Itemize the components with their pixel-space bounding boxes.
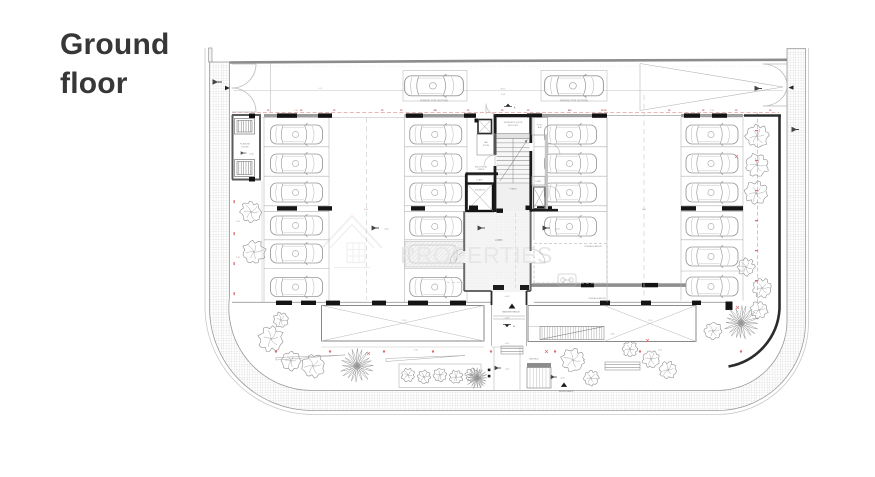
- svg-text:+0.45: +0.45: [505, 296, 510, 298]
- svg-text:29.15: 29.15: [500, 88, 506, 90]
- svg-text:TERRACE ABOVE: TERRACE ABOVE: [584, 245, 602, 248]
- svg-text:+0.30: +0.30: [505, 318, 510, 320]
- svg-text:2.50: 2.50: [710, 110, 714, 112]
- svg-text:PARKING FOR VISITORS: PARKING FOR VISITORS: [420, 99, 448, 102]
- svg-text:2.50: 2.50: [294, 110, 298, 112]
- svg-text:2.50: 2.50: [236, 257, 240, 259]
- svg-text:6.00: 6.00: [642, 209, 646, 211]
- svg-text:2.50: 2.50: [568, 110, 572, 112]
- svg-text:ELECTRICAL: ELECTRICAL: [475, 165, 488, 168]
- svg-text:+0.15: +0.15: [505, 369, 509, 371]
- svg-text:ELEVATOR: ELEVATOR: [475, 188, 485, 191]
- svg-text:LOBBY: LOBBY: [535, 181, 542, 183]
- svg-text:WITH STEP: WITH STEP: [508, 125, 519, 127]
- svg-text:+0.30: +0.30: [560, 378, 564, 380]
- svg-text:SPACE: SPACE: [478, 168, 485, 171]
- svg-text:6.00: 6.00: [364, 209, 368, 211]
- svg-text:SIDE ENTRANCE: SIDE ENTRANCE: [559, 390, 574, 393]
- svg-text:4.50: 4.50: [414, 350, 418, 352]
- svg-text:ROOM: ROOM: [483, 145, 490, 147]
- svg-text:GAC: GAC: [484, 141, 489, 144]
- svg-text:+0.45: +0.45: [384, 229, 389, 231]
- svg-text:17.05: 17.05: [401, 320, 407, 322]
- svg-text:2.50: 2.50: [433, 110, 437, 112]
- svg-text:HOUSE: HOUSE: [241, 146, 249, 148]
- svg-text:+0.00: +0.00: [249, 153, 254, 155]
- svg-text:PARKING FOR VISITORS: PARKING FOR VISITORS: [560, 99, 588, 102]
- svg-text:+0.15: +0.15: [505, 343, 510, 345]
- svg-text:+1.60: +1.60: [610, 334, 615, 336]
- svg-text:MAIN ENTRANCE: MAIN ENTRANCE: [502, 310, 520, 313]
- svg-text:LOBBY: LOBBY: [495, 239, 503, 242]
- svg-text:17.05: 17.05: [647, 320, 653, 322]
- svg-text:STAIRS: STAIRS: [509, 188, 517, 191]
- svg-text:LOBBY: LOBBY: [476, 180, 483, 182]
- svg-text:TERRACE ABOVE: TERRACE ABOVE: [588, 297, 606, 300]
- svg-text:+0.45: +0.45: [555, 229, 560, 231]
- svg-text:PLANLINE: PLANLINE: [240, 143, 250, 146]
- svg-text:BIKE RACK: BIKE RACK: [529, 358, 539, 361]
- svg-text:3.20: 3.20: [658, 350, 662, 352]
- svg-text:2.50: 2.50: [236, 221, 240, 223]
